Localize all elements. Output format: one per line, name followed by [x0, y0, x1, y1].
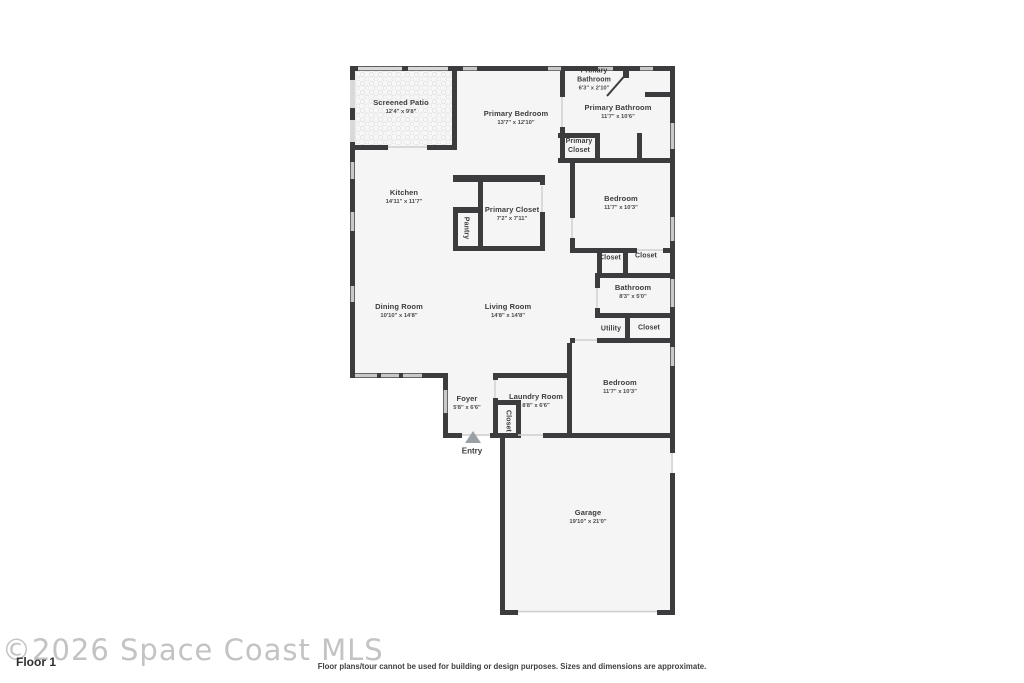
- floorplan-drawing: [0, 0, 1024, 683]
- entry-arrow-icon: [465, 431, 481, 443]
- screen-post: [402, 66, 408, 71]
- disclaimer-text: Floor plans/tour cannot be used for buil…: [0, 662, 1024, 671]
- patio-hatch: [355, 71, 452, 145]
- entry-label: Entry: [462, 447, 482, 456]
- floorplan-page: Screened Patio 12'4" x 9'8" Primary Bedr…: [0, 0, 1024, 683]
